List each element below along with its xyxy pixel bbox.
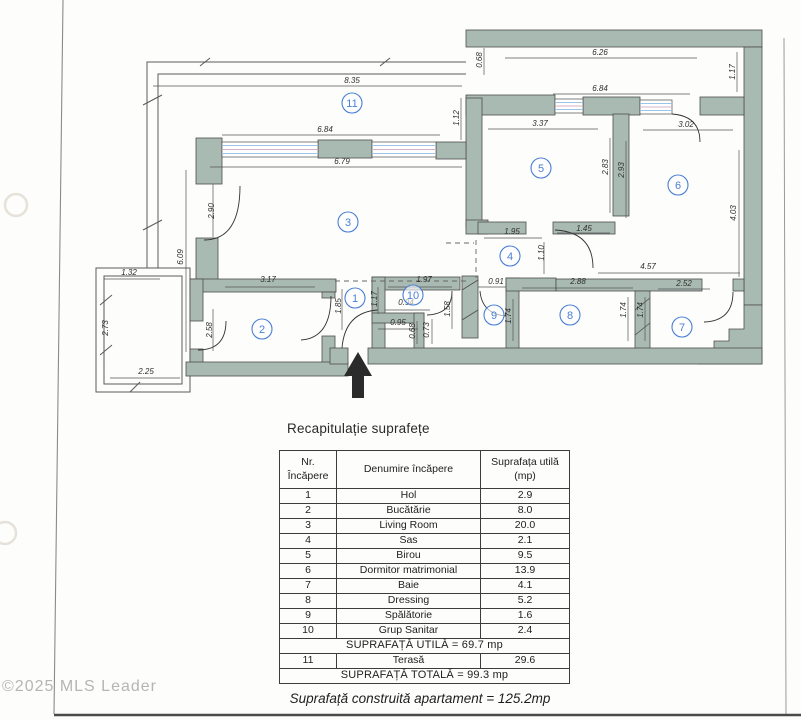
dimension-label: 3.02 xyxy=(678,120,694,129)
dimension-label: 1.97 xyxy=(416,275,432,284)
cell-name: Hol xyxy=(337,489,481,504)
dimension-label: 1.10 xyxy=(537,245,546,261)
cell-area: 8.0 xyxy=(481,504,570,519)
dimension-label: 2.88 xyxy=(569,277,586,286)
table-row: 2Bucătărie8.0 xyxy=(280,504,570,519)
dimension-label: 8.35 xyxy=(344,76,360,85)
table-header-row: Nr.Încăpere Denumire încăpere Suprafața … xyxy=(280,451,570,489)
dimension-label: 6.26 xyxy=(592,48,608,57)
room-number-label: 2 xyxy=(259,324,265,336)
dimension-label: 6.09 xyxy=(176,249,185,265)
cell-name: Baie xyxy=(337,579,481,594)
table-row: 9Spălătorie1.6 xyxy=(280,609,570,624)
dimension-label: 4.03 xyxy=(729,205,738,221)
room-number-label: 6 xyxy=(675,180,681,192)
dimension-label: 1.58 xyxy=(443,301,452,317)
dimension-label: 2.83 xyxy=(601,159,610,176)
header-area: Suprafața utilă(mp) xyxy=(481,451,570,489)
dimension-label: 1.95 xyxy=(504,227,520,236)
header-nr: Nr.Încăpere xyxy=(280,451,337,489)
dimension-label: 1.74 xyxy=(636,302,645,318)
cell-area: 20.0 xyxy=(481,519,570,534)
cell-nr: 7 xyxy=(280,579,337,594)
dimension-label: 2.73 xyxy=(101,320,110,337)
room-number-label: 8 xyxy=(567,310,573,322)
room-number-label: 3 xyxy=(345,217,351,229)
dimension-label: 0.73 xyxy=(422,322,431,338)
table-row: 3Living Room20.0 xyxy=(280,519,570,534)
cell-name: Bucătărie xyxy=(337,504,481,519)
dimension-label: 2.93 xyxy=(617,162,626,179)
cell-area: 1.6 xyxy=(481,609,570,624)
dimension-label: 1.85 xyxy=(334,298,343,314)
area-table: Nr.Încăpere Denumire încăpere Suprafața … xyxy=(279,450,570,684)
cell-area: 2.4 xyxy=(481,624,570,639)
cell-nr: 9 xyxy=(280,609,337,624)
dimension-label: 4.57 xyxy=(640,262,656,271)
dimension-label: 2.25 xyxy=(137,367,154,376)
dimension-label: 1.17 xyxy=(728,64,737,80)
grand-total-row: SUPRAFAȚĂ TOTALĂ = 99.3 mp xyxy=(280,669,570,684)
table-row: 8Dressing5.2 xyxy=(280,594,570,609)
table-row: 10Grup Sanitar2.4 xyxy=(280,624,570,639)
dimension-label: 0.95 xyxy=(390,318,406,327)
cell-nr: 6 xyxy=(280,564,337,579)
header-name: Denumire încăpere xyxy=(337,451,481,489)
cell-nr: 1 xyxy=(280,489,337,504)
cell-area: 4.1 xyxy=(481,579,570,594)
dimension-label: 6.84 xyxy=(592,84,608,93)
scanned-floor-plan-page: 8.356.260.686.841.171.126.843.373.026.79… xyxy=(0,0,801,720)
room-number-label: 4 xyxy=(507,251,513,263)
cell-nr: 10 xyxy=(280,624,337,639)
table-row: 6Dormitor matrimonial13.9 xyxy=(280,564,570,579)
watermark: ©2025 MLS Leader xyxy=(2,678,157,696)
dimension-label: 1.74 xyxy=(619,302,628,318)
dimension-label: 1.45 xyxy=(576,224,592,233)
cell-nr: 4 xyxy=(280,534,337,549)
cell-nr: 8 xyxy=(280,594,337,609)
dimension-label: 0.91 xyxy=(488,277,504,286)
dimension-label: 2.58 xyxy=(205,322,214,339)
room-number-label: 5 xyxy=(538,163,544,175)
cell-area: 13.9 xyxy=(481,564,570,579)
cell-name: Living Room xyxy=(337,519,481,534)
dimension-label: 0.68 xyxy=(408,323,417,339)
cell-name: Dressing xyxy=(337,594,481,609)
dimension-label: 6.79 xyxy=(334,157,350,166)
dimension-label: 1.12 xyxy=(452,110,461,126)
room-number-label: 1 xyxy=(352,293,358,305)
table-row: 5Birou9.5 xyxy=(280,549,570,564)
dimension-label: 1.32 xyxy=(121,268,137,277)
cell-name: Dormitor matrimonial xyxy=(337,564,481,579)
dimension-label: 2.90 xyxy=(207,203,216,220)
table-row: 4Sas2.1 xyxy=(280,534,570,549)
cell-area: 2.9 xyxy=(481,489,570,504)
cell-nr: 5 xyxy=(280,549,337,564)
room-number-label: 9 xyxy=(491,310,497,322)
cell-name: Sas xyxy=(337,534,481,549)
cell-name: Grup Sanitar xyxy=(337,624,481,639)
cell-area: 5.2 xyxy=(481,594,570,609)
summary-title: Recapitulație suprafețe xyxy=(287,421,430,436)
dimension-label: 0.68 xyxy=(475,52,484,68)
dimension-label: 6.84 xyxy=(317,125,333,134)
dimension-label: 3.17 xyxy=(260,275,276,284)
cell-nr: 3 xyxy=(280,519,337,534)
utila-total-row: SUPRAFAȚĂ UTILĂ = 69.7 mp xyxy=(280,639,570,654)
room-number-label: 7 xyxy=(679,322,685,334)
dimension-label: 3.37 xyxy=(532,119,548,128)
built-area-caption: Suprafață construită apartament = 125.2m… xyxy=(270,691,570,706)
terrace-outline xyxy=(96,58,466,392)
room-number-label: 11 xyxy=(346,98,357,110)
cell-name: Birou xyxy=(337,549,481,564)
room-number-label: 10 xyxy=(407,290,419,302)
terrace-row: 11 Terasă 29.6 xyxy=(280,654,570,669)
dimension-label: 1.74 xyxy=(504,308,513,324)
table-row: 1Hol2.9 xyxy=(280,489,570,504)
dimension-label: 1.17 xyxy=(370,291,379,307)
cell-area: 9.5 xyxy=(481,549,570,564)
cell-name: Spălătorie xyxy=(337,609,481,624)
table-row: 7Baie4.1 xyxy=(280,579,570,594)
dimension-label: 2.52 xyxy=(675,279,692,288)
hole-punch xyxy=(0,522,16,544)
cell-area: 2.1 xyxy=(481,534,570,549)
dashed-openings xyxy=(335,240,476,281)
hole-punch xyxy=(5,194,27,216)
cell-nr: 2 xyxy=(280,504,337,519)
